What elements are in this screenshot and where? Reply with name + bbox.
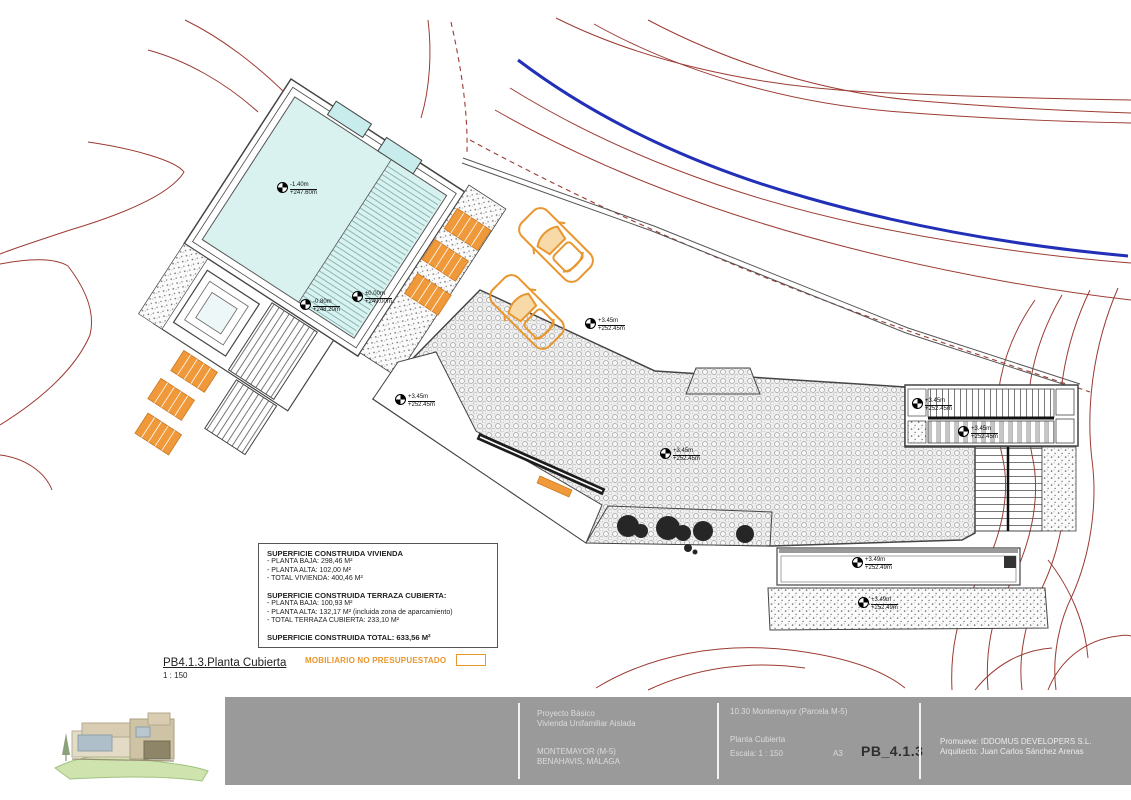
level-marker-icon [660, 448, 671, 459]
furniture-legend: MOBILIARIO NO PRESUPUESTADO [305, 654, 486, 666]
exterior-stairs [975, 447, 1076, 531]
boundary-blue-line [518, 60, 1128, 256]
level-marker-icon [912, 398, 923, 409]
titleblock-divider [919, 703, 921, 779]
level-marker-icon [300, 299, 311, 310]
lower-gravel-strip [768, 588, 1048, 630]
level-marker: -1.40m+247.60m [277, 182, 317, 197]
level-marker-icon [958, 426, 969, 437]
title-block: Proyecto Básico Vivienda Unifamiliar Ais… [225, 697, 1131, 785]
areas-section2-title: SUPERFICIE CONSTRUIDA TERRAZA CUBIERTA: [267, 592, 489, 600]
lower-terrace [777, 548, 1020, 585]
project-reference: 10.30 Montemayor (Parcela M-5) [730, 707, 847, 717]
level-marker-icon [852, 557, 863, 568]
scale-label: Escala: 1 : 150 [730, 749, 783, 759]
level-marker: +3.49m+252.49m [852, 557, 892, 572]
areas-line: - PLANTA ALTA: 102,00 M² [267, 567, 489, 575]
car [512, 201, 600, 289]
pool-area [83, 72, 507, 536]
sun-loungers [128, 348, 221, 455]
level-marker-icon [352, 291, 363, 302]
titleblock-divider [717, 703, 719, 779]
areas-line: - PLANTA ALTA: 132,17 M² (incluida zona … [267, 609, 489, 617]
level-marker-icon [395, 394, 406, 405]
areas-section1-title: SUPERFICIE CONSTRUIDA VIVIENDA [267, 550, 489, 558]
areas-total-line: SUPERFICIE CONSTRUIDA TOTAL: 633,56 M² [267, 634, 489, 642]
main-roof [373, 290, 975, 555]
level-marker: +3.45m+252.45m [585, 318, 625, 333]
level-marker: +3.49m+252.49m [858, 597, 898, 612]
level-marker: +3.45m+252.45m [958, 426, 998, 441]
level-marker: ±0.00m+249.00m [352, 291, 392, 306]
level-marker-icon [277, 182, 288, 193]
level-marker: -0.80m+248.20m [300, 299, 340, 314]
areas-line: - TOTAL VIVIENDA: 400,46 M² [267, 575, 489, 583]
house-sketch [50, 693, 220, 788]
project-type: Proyecto Básico Vivienda Unifamiliar Ais… [537, 709, 636, 729]
built-areas-box: SUPERFICIE CONSTRUIDA VIVIENDA - PLANTA … [258, 543, 498, 648]
roof-bump [686, 368, 760, 394]
areas-line: - TOTAL TERRAZA CUBIERTA: 233,10 M² [267, 617, 489, 625]
level-marker: +3.45m+252.45m [395, 394, 435, 409]
furniture-swatch-icon [456, 654, 486, 666]
site-plan-svg [0, 0, 1131, 800]
level-marker: +3.45m+252.45m [660, 448, 700, 463]
areas-line: - PLANTA BAJA: 298,46 M² [267, 558, 489, 566]
sheet-code: PB_4.1.3 [861, 743, 923, 759]
credits: Promueve: IDDOMUS DEVELOPERS S.L. Arquit… [940, 737, 1092, 757]
plan-label-title: PB4.1.3.Planta Cubierta [163, 657, 286, 669]
level-marker-icon [858, 597, 869, 608]
level-marker: +3.45m+252.45m [912, 398, 952, 413]
paper-size: A3 [833, 749, 843, 759]
plan-label-scale: 1 : 150 [163, 671, 286, 680]
areas-line: - PLANTA BAJA: 100,93 M² [267, 600, 489, 608]
plan-label: PB4.1.3.Planta Cubierta 1 : 150 [163, 657, 286, 680]
drawing-sheet: -1.40m+247.60m -0.80m+248.20m ±0.00m+249… [0, 0, 1131, 800]
titleblock-divider [518, 703, 520, 779]
plan-name: Planta Cubierta [730, 735, 785, 745]
project-location: MONTEMAYOR (M-5) BENAHAVIS, MÁLAGA [537, 747, 620, 767]
furniture-note-text: MOBILIARIO NO PRESUPUESTADO [305, 656, 446, 665]
level-marker-icon [585, 318, 596, 329]
